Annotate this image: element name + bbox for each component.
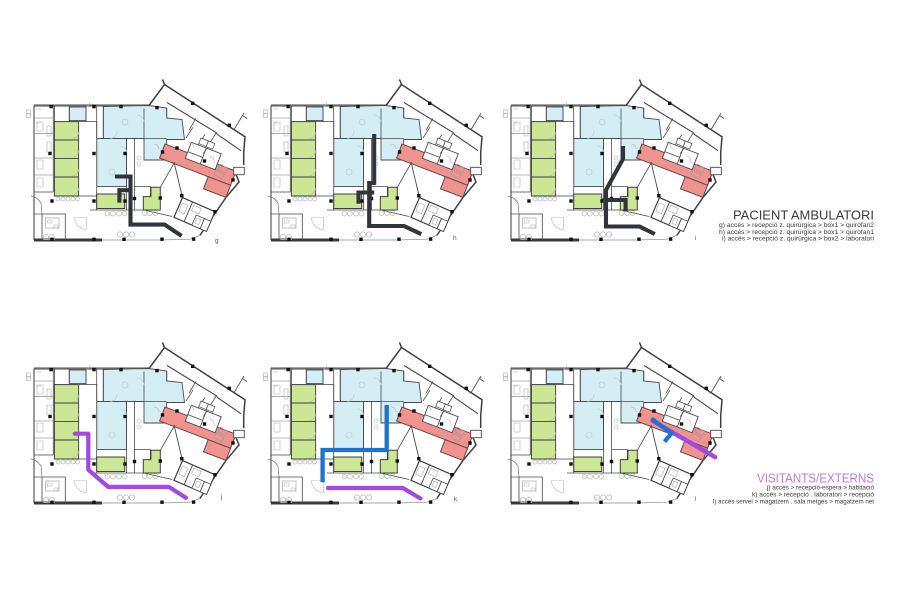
svg-text:VISITANTS/EXTERNS: VISITANTS/EXTERNS bbox=[757, 471, 874, 486]
svg-text:i: i bbox=[695, 235, 696, 242]
svg-text:g: g bbox=[215, 238, 219, 245]
svg-text:j: j bbox=[220, 494, 222, 501]
svg-text:k) accès > recepció . laborato: k) accès > recepció . laboratori > recep… bbox=[752, 492, 874, 499]
svg-text:PACIENT AMBULATORI: PACIENT AMBULATORI bbox=[733, 207, 874, 222]
svg-text:l) accès servei > magatzem . s: l) accès servei > magatzem . sala metges… bbox=[713, 499, 874, 506]
svg-text:j) accès > recepció-espera > h: j) accès > recepció-espera > habitació bbox=[766, 485, 874, 492]
svg-text:h: h bbox=[453, 235, 457, 242]
svg-text:l: l bbox=[695, 496, 697, 503]
svg-text:i) accés > recepció z. quirúrg: i) accés > recepció z. quirúrgica > box2… bbox=[722, 236, 874, 243]
svg-text:k: k bbox=[454, 496, 458, 503]
